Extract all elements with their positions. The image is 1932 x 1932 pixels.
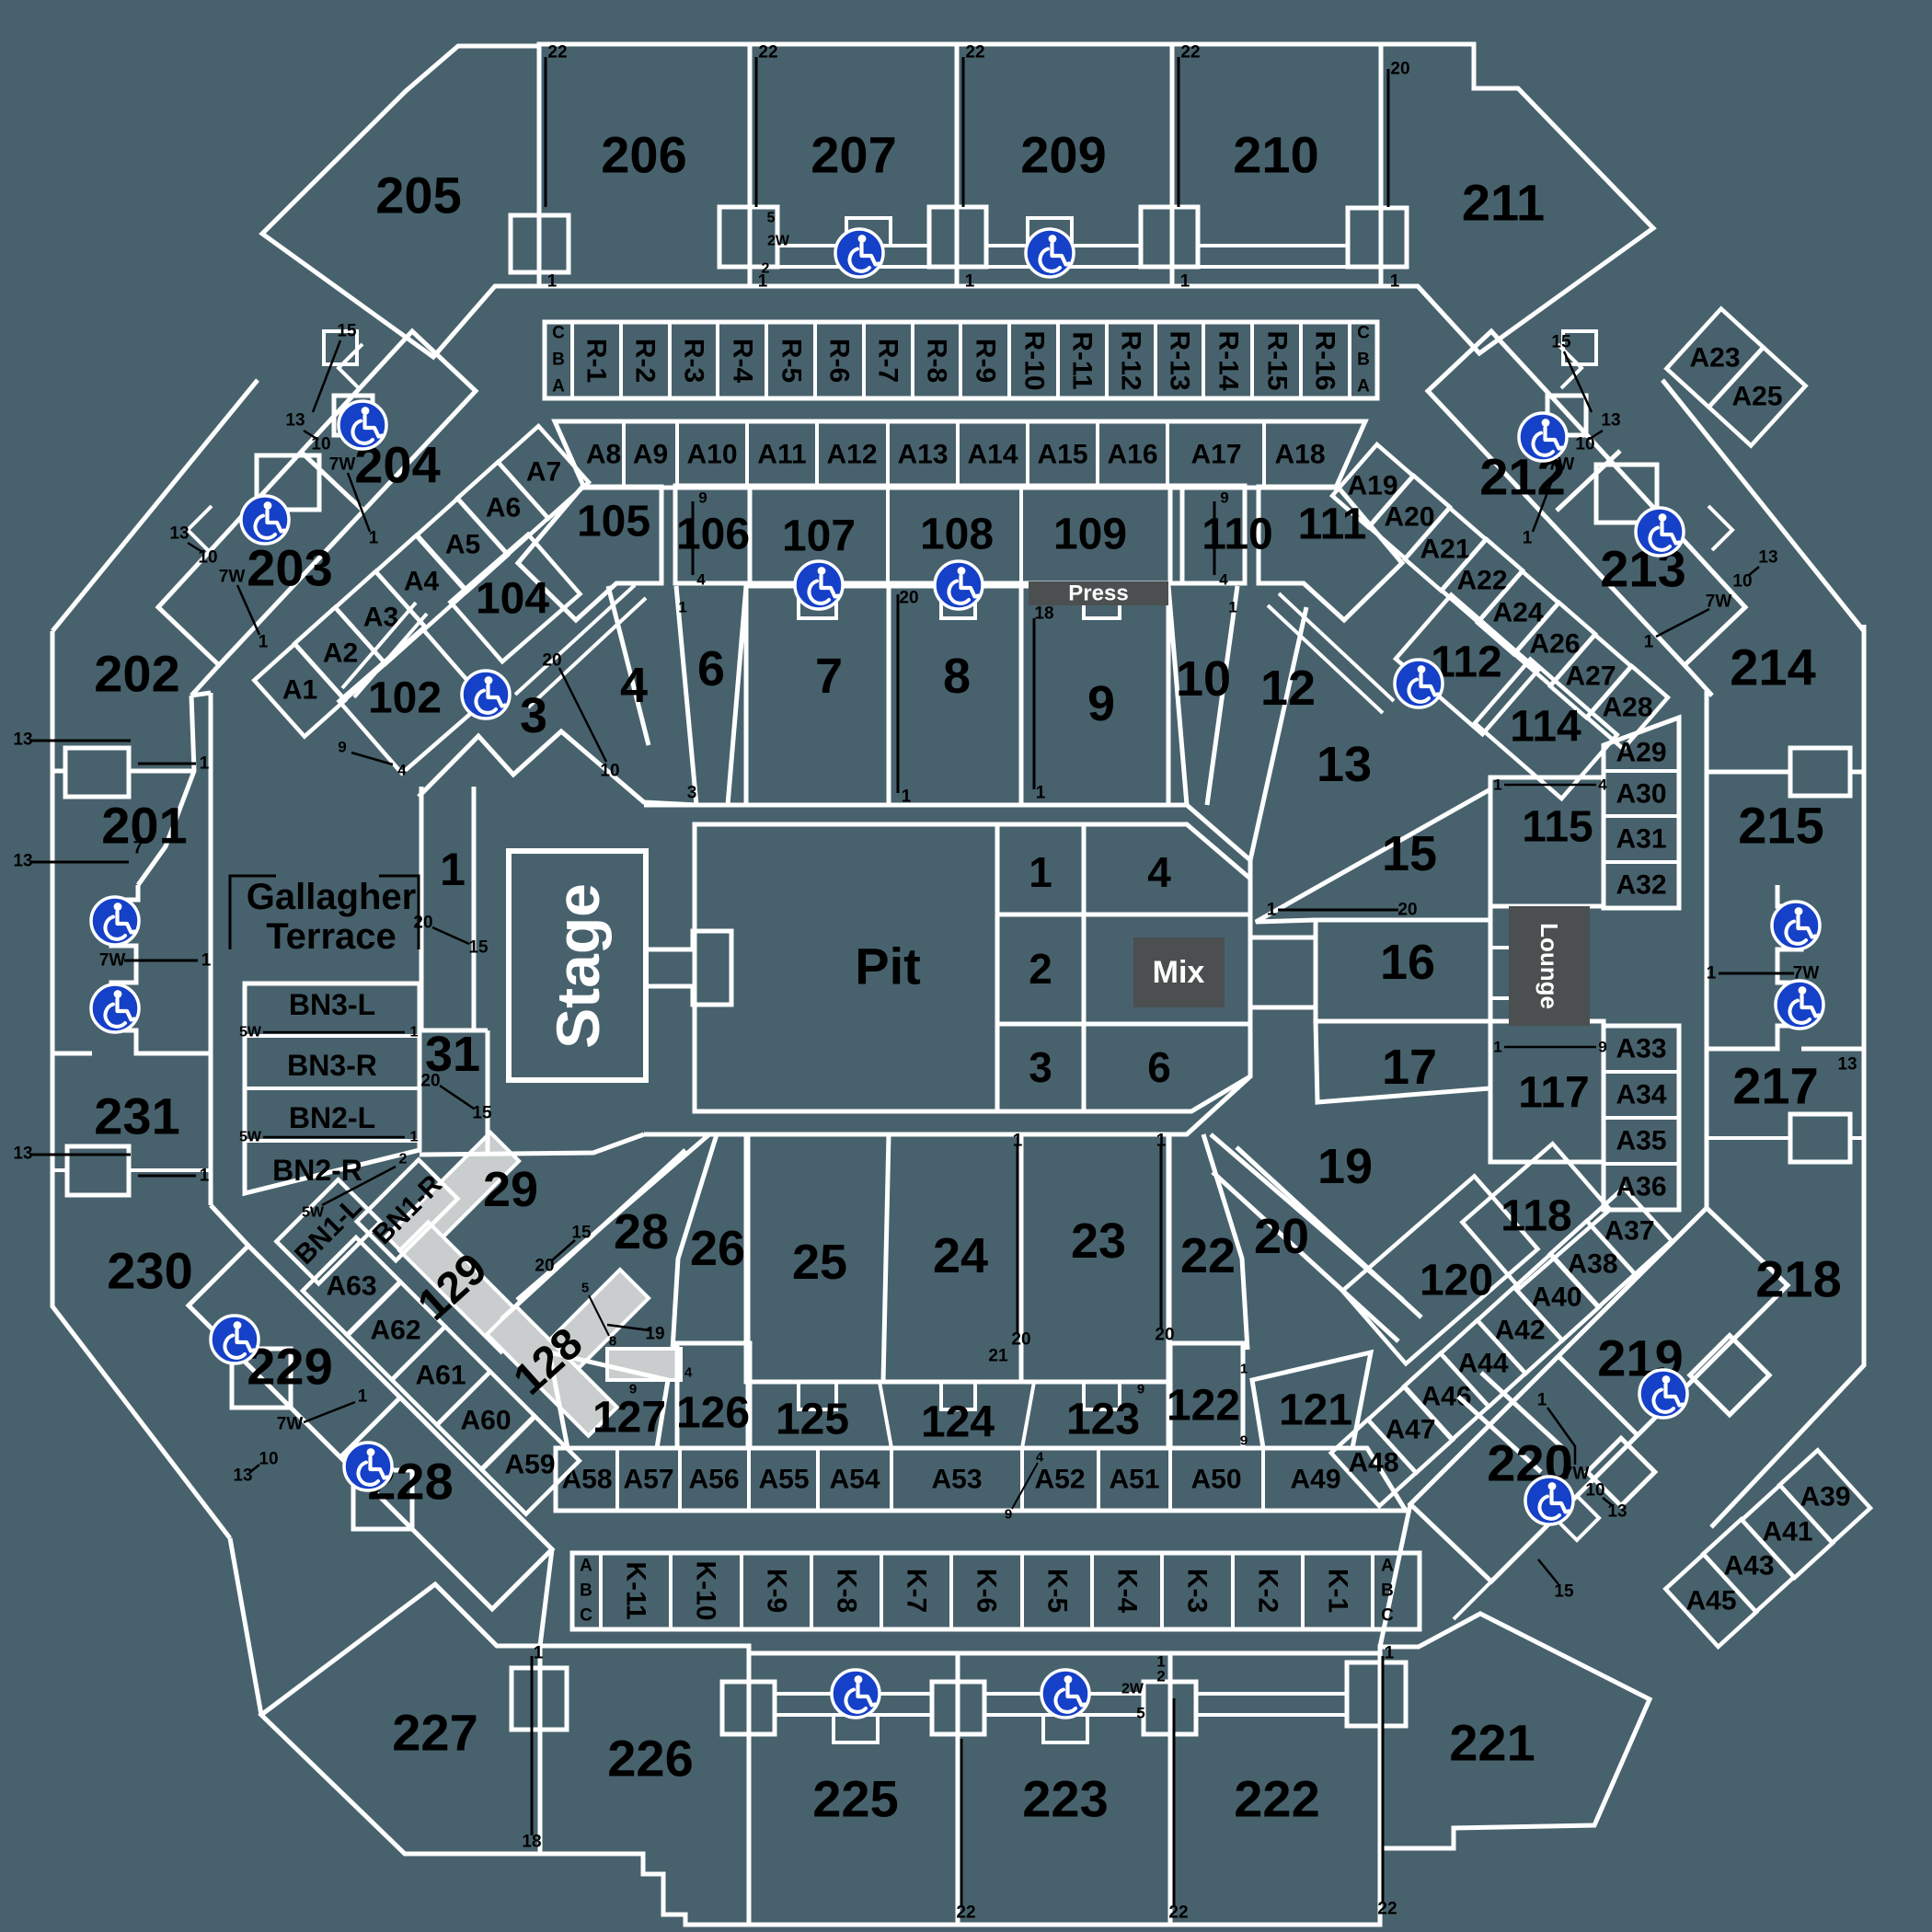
svg-text:21: 21 [988,1347,1008,1366]
svg-text:7W: 7W [277,1415,304,1434]
svg-text:K-11: K-11 [621,1561,651,1619]
svg-text:A5: A5 [445,530,480,560]
svg-text:7W: 7W [1706,592,1732,612]
svg-text:R-12: R-12 [1116,330,1146,390]
svg-text:A48: A48 [1348,1448,1398,1478]
svg-text:22: 22 [1180,43,1200,63]
svg-text:A25: A25 [1731,382,1782,412]
svg-text:R-14: R-14 [1213,330,1244,390]
svg-text:13: 13 [1601,411,1620,431]
svg-text:1: 1 [259,633,269,652]
svg-text:111: 111 [1298,500,1367,549]
svg-text:A4: A4 [404,567,440,597]
svg-text:207: 207 [811,126,896,184]
svg-text:7W: 7W [219,568,246,587]
svg-text:K-8: K-8 [832,1569,862,1613]
svg-text:A1: A1 [282,675,317,706]
svg-text:K-7: K-7 [902,1569,932,1613]
svg-text:4: 4 [397,762,407,779]
svg-text:A51: A51 [1109,1465,1159,1495]
svg-text:A50: A50 [1190,1465,1241,1495]
svg-text:20: 20 [535,1257,554,1276]
svg-text:23: 23 [1071,1213,1126,1269]
svg-text:202: 202 [94,645,179,703]
svg-text:1: 1 [1240,1362,1248,1377]
svg-text:A43: A43 [1723,1551,1774,1581]
svg-text:10: 10 [1585,1481,1604,1501]
svg-text:A8: A8 [586,440,621,470]
svg-text:A13: A13 [897,440,948,470]
svg-text:BN2-R: BN2-R [272,1154,362,1187]
svg-text:217: 217 [1732,1057,1818,1115]
svg-text:A63: A63 [326,1271,376,1302]
svg-text:5W: 5W [302,1205,325,1221]
svg-text:1: 1 [1523,529,1533,548]
svg-text:29: 29 [483,1162,538,1217]
svg-text:2W: 2W [1121,1682,1144,1697]
svg-text:A54: A54 [829,1465,880,1495]
svg-text:102: 102 [368,674,442,723]
svg-text:1: 1 [1707,964,1717,983]
svg-text:1: 1 [1644,633,1654,652]
svg-text:2: 2 [399,1152,408,1167]
svg-text:210: 210 [1233,126,1318,184]
svg-text:109: 109 [1053,511,1127,559]
svg-text:R-10: R-10 [1019,330,1050,390]
svg-text:Mix: Mix [1153,955,1205,990]
svg-text:5: 5 [581,1281,589,1296]
svg-text:K-3: K-3 [1182,1569,1213,1613]
svg-text:20: 20 [899,589,918,608]
svg-text:10: 10 [198,548,217,568]
svg-text:24: 24 [933,1228,988,1283]
svg-text:8: 8 [609,1334,616,1350]
svg-text:15: 15 [1551,333,1571,352]
svg-text:A9: A9 [633,440,668,470]
svg-text:R-1: R-1 [581,339,612,383]
svg-text:A17: A17 [1190,440,1241,470]
svg-text:A47: A47 [1385,1415,1435,1445]
svg-text:4: 4 [696,571,706,589]
svg-text:20: 20 [542,651,561,671]
svg-text:A59: A59 [504,1450,555,1480]
svg-text:106: 106 [676,511,750,559]
svg-text:1: 1 [1228,599,1236,616]
svg-text:18: 18 [1034,604,1053,624]
svg-text:9: 9 [698,489,707,507]
svg-text:R-11: R-11 [1067,331,1098,389]
svg-text:20: 20 [1254,1209,1309,1264]
svg-text:R-7: R-7 [873,339,903,383]
svg-text:15: 15 [337,322,357,341]
svg-text:A: A [1357,377,1370,397]
svg-text:5W: 5W [239,1025,262,1041]
svg-text:13: 13 [1317,737,1372,792]
svg-text:1: 1 [201,951,212,971]
svg-text:1: 1 [440,844,466,895]
svg-text:218: 218 [1755,1250,1841,1308]
svg-text:107: 107 [782,512,856,561]
svg-text:205: 205 [375,167,461,224]
svg-text:13: 13 [233,1466,252,1486]
svg-text:20: 20 [1155,1326,1174,1345]
svg-text:A45: A45 [1685,1586,1736,1616]
svg-text:22: 22 [1377,1900,1397,1919]
svg-text:A: A [580,1557,592,1576]
svg-text:A16: A16 [1107,440,1157,470]
svg-text:13: 13 [13,852,32,871]
svg-text:A53: A53 [931,1465,982,1495]
svg-text:6: 6 [1147,1043,1171,1091]
svg-text:8: 8 [943,649,971,704]
svg-text:R-3: R-3 [679,339,709,383]
svg-text:229: 229 [247,1338,332,1396]
svg-text:A10: A10 [686,440,737,470]
svg-text:122: 122 [1167,1382,1240,1431]
svg-text:1: 1 [1156,1132,1167,1151]
svg-text:221: 221 [1449,1714,1535,1772]
svg-text:Gallagher: Gallagher [247,877,417,917]
svg-text:A29: A29 [1616,738,1666,768]
svg-text:10: 10 [600,762,619,781]
svg-text:13: 13 [13,730,32,750]
svg-text:15: 15 [571,1224,592,1243]
svg-text:4: 4 [1036,1450,1044,1466]
svg-text:9: 9 [1137,1382,1144,1397]
svg-text:R-5: R-5 [776,339,807,383]
svg-text:A39: A39 [1800,1482,1850,1512]
svg-text:A41: A41 [1762,1517,1812,1547]
svg-text:1: 1 [410,1130,419,1145]
svg-text:10: 10 [1732,572,1752,592]
svg-text:9: 9 [338,739,346,756]
svg-text:1: 1 [902,788,912,807]
svg-text:201: 201 [101,797,187,855]
svg-text:22: 22 [758,43,777,63]
svg-text:15: 15 [1554,1582,1574,1602]
svg-text:A56: A56 [688,1465,739,1495]
svg-text:Pit: Pit [855,937,921,995]
svg-text:10: 10 [311,435,330,454]
svg-text:225: 225 [812,1770,898,1828]
svg-text:BN2-L: BN2-L [289,1101,375,1134]
svg-text:108: 108 [920,511,994,559]
svg-text:3: 3 [520,688,547,743]
svg-text:22: 22 [956,1903,975,1923]
svg-text:R-13: R-13 [1165,330,1195,390]
svg-text:A27: A27 [1565,661,1616,692]
svg-text:A62: A62 [370,1316,420,1346]
svg-text:13: 13 [169,524,189,544]
svg-text:K-1: K-1 [1323,1569,1353,1613]
svg-text:15: 15 [468,938,489,958]
svg-text:Lounge: Lounge [1535,923,1563,1009]
svg-text:9: 9 [1220,489,1228,507]
svg-text:R-6: R-6 [824,339,855,383]
svg-text:A14: A14 [967,440,1018,470]
svg-text:1: 1 [1385,1644,1395,1663]
svg-text:230: 230 [107,1242,192,1300]
svg-text:214: 214 [1730,638,1815,696]
svg-text:5W: 5W [239,1130,262,1145]
svg-text:1: 1 [1390,272,1400,292]
svg-text:B: B [1357,351,1370,370]
svg-text:20: 20 [420,1072,440,1091]
svg-text:K-2: K-2 [1253,1569,1283,1613]
svg-text:K-9: K-9 [762,1569,792,1613]
svg-text:A11: A11 [757,440,806,470]
svg-text:A60: A60 [460,1406,511,1436]
svg-text:118: 118 [1501,1192,1571,1241]
svg-text:1: 1 [1036,784,1046,803]
svg-text:18: 18 [522,1833,541,1852]
svg-text:2: 2 [762,261,770,277]
svg-text:A24: A24 [1492,598,1543,628]
svg-text:A2: A2 [323,638,358,669]
svg-text:A52: A52 [1034,1465,1085,1495]
svg-text:223: 223 [1022,1770,1108,1828]
svg-text:15: 15 [472,1104,492,1123]
svg-text:10: 10 [1575,435,1594,454]
svg-text:1: 1 [358,1387,368,1407]
svg-text:20: 20 [1397,901,1417,920]
svg-text:Press: Press [1068,581,1128,606]
svg-text:R-8: R-8 [922,339,952,383]
svg-text:5: 5 [1136,1705,1144,1722]
svg-text:9: 9 [1598,1039,1606,1056]
svg-text:209: 209 [1020,126,1106,184]
svg-text:A34: A34 [1616,1080,1666,1110]
svg-text:1: 1 [1013,1132,1023,1151]
svg-text:19: 19 [645,1325,664,1344]
svg-text:7: 7 [133,839,144,858]
svg-text:A18: A18 [1274,440,1325,470]
svg-text:C: C [580,1606,592,1626]
svg-text:115: 115 [1522,803,1593,852]
svg-text:10: 10 [1176,651,1231,707]
svg-text:104: 104 [476,575,549,624]
svg-text:A30: A30 [1616,779,1666,810]
svg-text:22: 22 [1168,1903,1188,1923]
svg-text:A: A [552,377,565,397]
svg-text:4: 4 [1147,848,1171,896]
svg-text:5: 5 [767,211,776,226]
svg-text:28: 28 [614,1204,669,1259]
svg-text:R-2: R-2 [630,339,661,383]
svg-text:17: 17 [1382,1040,1437,1095]
svg-text:9: 9 [629,1382,637,1397]
svg-text:BN3-L: BN3-L [289,988,375,1021]
svg-text:A12: A12 [826,440,877,470]
svg-text:A: A [1381,1557,1394,1576]
svg-text:13: 13 [1837,1055,1857,1075]
svg-text:A6: A6 [486,493,521,523]
svg-text:16: 16 [1380,935,1435,990]
svg-text:12: 12 [1260,661,1316,716]
svg-text:215: 215 [1738,797,1823,855]
svg-text:10: 10 [259,1450,278,1469]
svg-text:1: 1 [1493,776,1501,794]
svg-text:A22: A22 [1456,566,1507,596]
svg-text:A15: A15 [1037,440,1087,470]
svg-text:120: 120 [1420,1257,1493,1305]
svg-text:20: 20 [413,914,432,933]
svg-text:A23: A23 [1689,343,1740,374]
svg-text:A7: A7 [526,457,561,488]
svg-text:A19: A19 [1347,471,1397,501]
svg-text:25: 25 [792,1235,847,1290]
svg-text:1: 1 [547,272,558,292]
svg-text:6: 6 [697,641,725,696]
svg-text:22: 22 [547,43,567,63]
svg-text:C: C [552,324,565,343]
svg-text:22: 22 [1180,1228,1236,1283]
svg-text:A55: A55 [758,1465,809,1495]
svg-text:1: 1 [534,1644,544,1663]
svg-text:105: 105 [577,498,650,546]
svg-text:4: 4 [1219,571,1228,589]
svg-text:3: 3 [1029,1043,1052,1091]
svg-text:211: 211 [1462,174,1545,232]
svg-text:A57: A57 [623,1465,673,1495]
svg-text:Stage: Stage [544,883,612,1049]
svg-text:20: 20 [1390,60,1409,79]
svg-text:1: 1 [678,599,686,616]
svg-text:K-6: K-6 [972,1569,1002,1613]
svg-text:127: 127 [592,1394,666,1443]
svg-text:B: B [552,351,565,370]
svg-text:19: 19 [1317,1139,1373,1194]
svg-text:K-4: K-4 [1112,1569,1143,1614]
svg-text:A21: A21 [1420,535,1470,565]
svg-text:222: 222 [1234,1770,1319,1828]
svg-text:114: 114 [1510,703,1581,752]
svg-text:13: 13 [1758,548,1777,568]
svg-text:227: 227 [392,1704,477,1762]
svg-text:A49: A49 [1290,1465,1340,1495]
svg-text:22: 22 [965,43,984,63]
svg-text:1: 1 [200,1167,210,1186]
svg-text:B: B [580,1581,592,1601]
svg-text:226: 226 [607,1730,693,1788]
svg-text:A36: A36 [1616,1172,1666,1202]
svg-text:1: 1 [1537,1391,1547,1410]
svg-text:4: 4 [620,658,648,713]
svg-text:4: 4 [1598,776,1607,794]
svg-text:1: 1 [1029,848,1052,896]
svg-text:R-9: R-9 [971,339,1001,383]
svg-text:121: 121 [1279,1386,1352,1435]
svg-text:A26: A26 [1529,629,1580,660]
svg-text:A42: A42 [1494,1316,1545,1346]
svg-text:206: 206 [601,126,686,184]
svg-text:1: 1 [965,272,975,292]
svg-text:7W: 7W [329,455,356,475]
svg-text:26: 26 [690,1221,745,1276]
svg-text:A31: A31 [1616,824,1666,855]
svg-text:124: 124 [921,1398,995,1447]
svg-text:1: 1 [1180,272,1190,292]
svg-text:231: 231 [94,1087,179,1145]
svg-text:2: 2 [1029,945,1052,993]
svg-text:20: 20 [1011,1330,1030,1350]
svg-text:125: 125 [776,1396,849,1444]
svg-text:9: 9 [1087,676,1115,731]
svg-text:4: 4 [684,1365,693,1381]
svg-text:A40: A40 [1531,1282,1581,1313]
svg-text:7W: 7W [99,951,126,971]
svg-text:203: 203 [247,539,332,597]
svg-text:13: 13 [1607,1502,1627,1522]
svg-text:9: 9 [1240,1433,1248,1449]
svg-text:Terrace: Terrace [266,916,397,957]
svg-text:A61: A61 [415,1361,466,1391]
svg-text:1: 1 [200,754,210,774]
svg-text:R-16: R-16 [1310,330,1340,390]
svg-text:117: 117 [1518,1069,1589,1118]
svg-text:BN3-R: BN3-R [287,1049,377,1082]
svg-text:B: B [1381,1581,1394,1601]
svg-text:K-5: K-5 [1042,1569,1073,1613]
svg-text:A28: A28 [1602,693,1652,723]
svg-text:15: 15 [1382,826,1437,881]
svg-text:A20: A20 [1384,502,1434,533]
svg-text:1: 1 [410,1025,419,1041]
svg-text:A32: A32 [1616,870,1666,901]
svg-text:C: C [1381,1606,1394,1626]
svg-text:A37: A37 [1604,1216,1654,1247]
svg-text:A46: A46 [1420,1382,1471,1412]
svg-text:C: C [1357,324,1370,343]
svg-text:126: 126 [676,1389,750,1438]
svg-text:13: 13 [285,411,305,431]
svg-text:1: 1 [1267,901,1277,920]
svg-text:A33: A33 [1616,1034,1666,1064]
svg-text:2W: 2W [767,234,790,249]
svg-text:9: 9 [1005,1507,1012,1523]
svg-text:A38: A38 [1567,1249,1617,1280]
svg-text:1: 1 [1493,1039,1501,1056]
svg-text:123: 123 [1066,1396,1140,1444]
svg-text:110: 110 [1202,511,1272,559]
svg-text:R-4: R-4 [728,339,758,384]
svg-text:13: 13 [13,1144,32,1164]
svg-text:7: 7 [815,649,843,704]
svg-text:R-15: R-15 [1262,330,1293,390]
svg-text:2: 2 [1156,1668,1165,1685]
svg-text:K-10: K-10 [691,1560,721,1620]
svg-text:A35: A35 [1616,1126,1666,1156]
svg-text:3: 3 [687,784,697,803]
svg-text:1: 1 [369,529,379,548]
